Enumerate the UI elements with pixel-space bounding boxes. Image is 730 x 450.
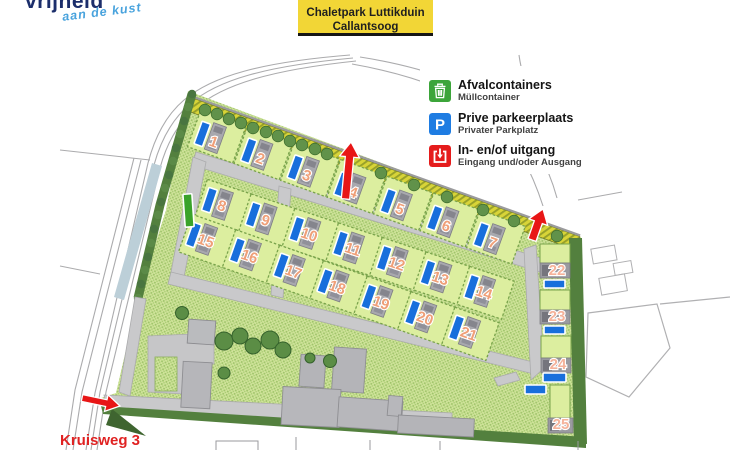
svg-text:22: 22 xyxy=(549,262,566,279)
svg-text:P: P xyxy=(435,117,445,134)
svg-text:23: 23 xyxy=(549,308,566,325)
svg-text:25: 25 xyxy=(553,416,570,433)
svg-text:24: 24 xyxy=(550,356,567,373)
